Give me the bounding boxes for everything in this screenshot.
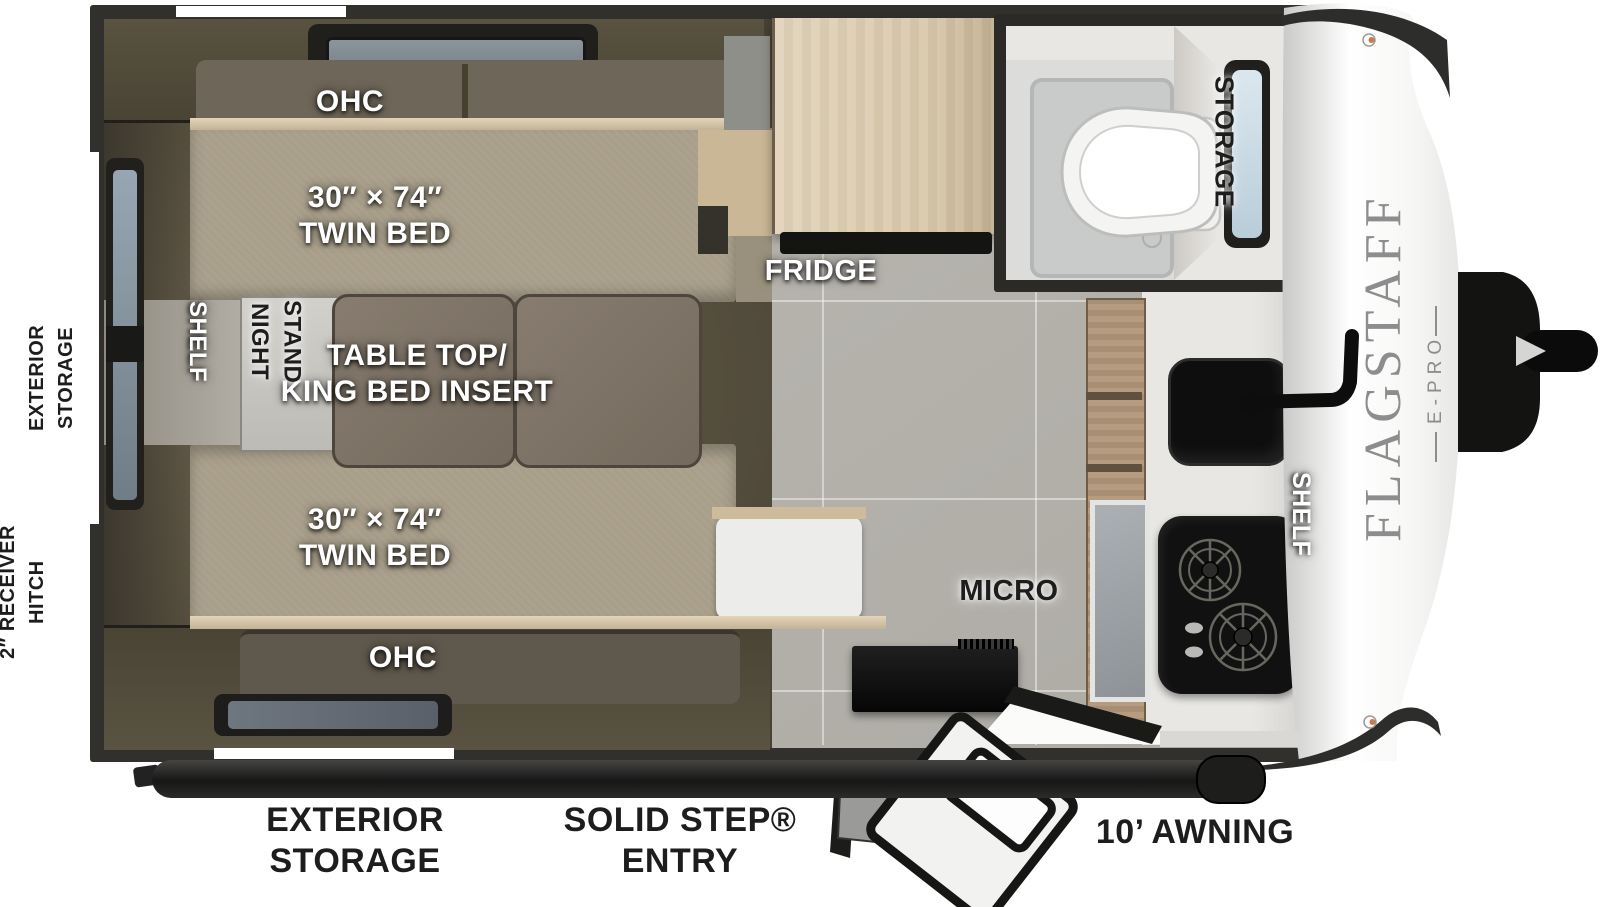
- stove-burner-front: [1180, 540, 1240, 600]
- awning-label: 10’ AWNING: [1040, 812, 1350, 853]
- solid-step-entry-label: SOLID STEP® ENTRY: [510, 800, 850, 883]
- rear-exterior-storage-label: EXTERIOR STORAGE: [20, 280, 84, 475]
- awning-end-cap: [1196, 755, 1266, 804]
- ohc-top-label: OHC: [290, 84, 410, 120]
- brand-epro: E-PRO: [1425, 334, 1446, 424]
- brand-flagstaff: FLAGSTAFF: [1355, 191, 1412, 542]
- stove-knob: [1185, 623, 1203, 634]
- bottom-exterior-storage-label: EXTERIOR STORAGE: [185, 800, 525, 883]
- twin-bed-bottom-label: 30″ × 74″ TWIN BED: [255, 502, 495, 574]
- toilet-seat: [1080, 126, 1199, 218]
- micro-label: MICRO: [934, 574, 1084, 609]
- night-stand-label: NIGHT STAND: [235, 278, 315, 406]
- awning-roller-bar: [152, 760, 1232, 798]
- kitchen-shelf-label: SHELF: [1282, 452, 1318, 576]
- fridge-label: FRIDGE: [746, 254, 896, 289]
- ohc-bottom-label: OHC: [343, 640, 463, 676]
- floorplan-canvas: FLAGSTAFF E-PRO: [0, 0, 1600, 907]
- stove-burner-rear: [1210, 604, 1276, 670]
- cap-rivet-center: [1370, 719, 1376, 725]
- stove-knob: [1185, 647, 1203, 658]
- twin-bed-top-label: 30″ × 74″ TWIN BED: [255, 180, 495, 252]
- receiver-hitch-label: 2″ RECEIVER HITCH: [0, 486, 52, 698]
- bath-storage-label: STORAGE: [1205, 52, 1243, 232]
- cap-rivet-center: [1369, 37, 1375, 43]
- table-label: TABLE TOP/ KING BED INSERT: [272, 338, 562, 410]
- entry-threshold: [1160, 731, 1300, 747]
- rear-shelf-label: SHELF: [178, 286, 216, 398]
